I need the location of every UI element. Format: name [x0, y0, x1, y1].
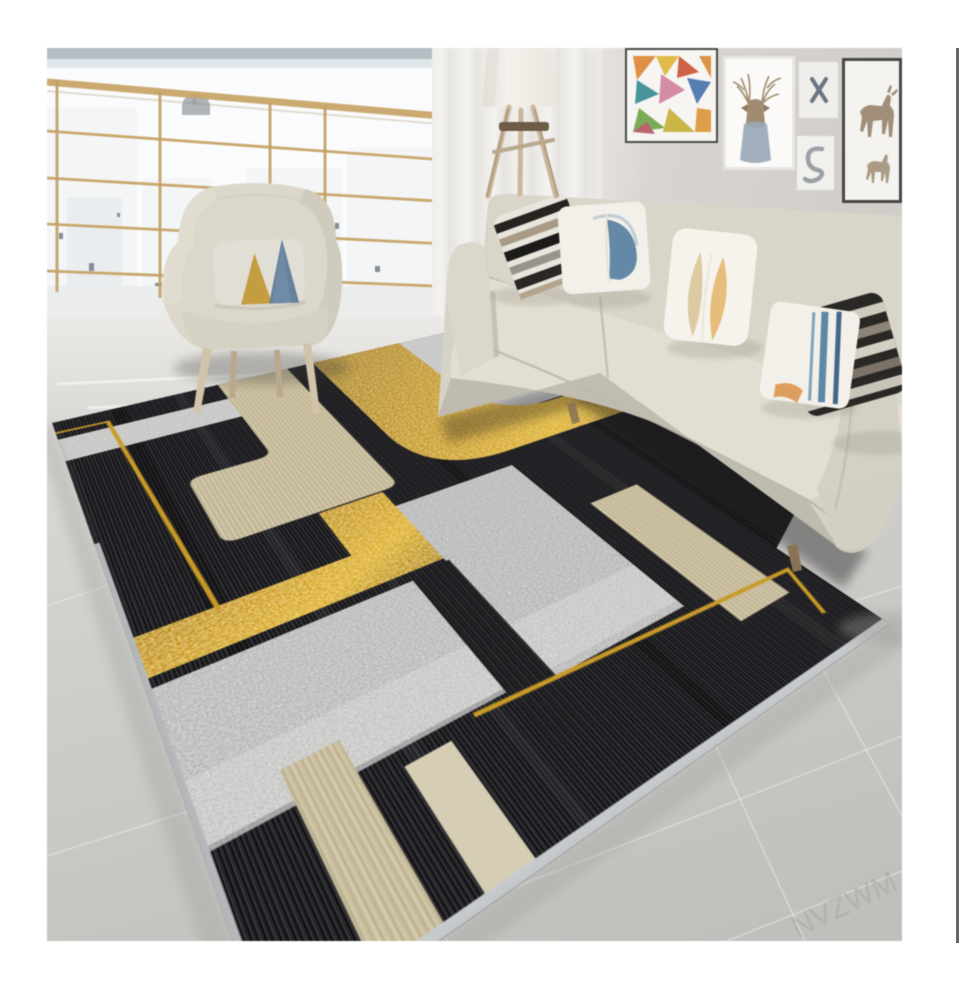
svg-text:NVZWM: NVZWM — [786, 865, 902, 941]
